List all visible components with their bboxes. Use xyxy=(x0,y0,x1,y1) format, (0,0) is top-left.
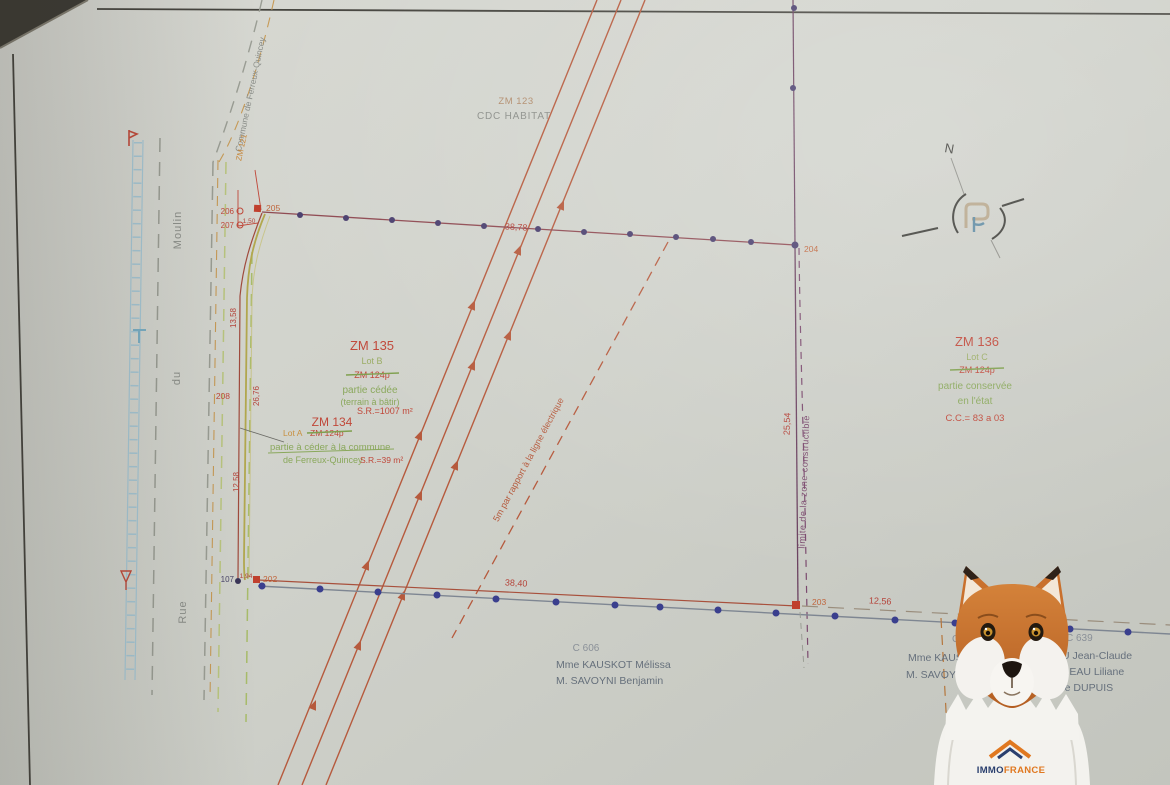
shadow-overlay xyxy=(0,0,1170,785)
photographed-survey-plan: ZM 123 CDC HABITAT Commune de Ferreux-Qu… xyxy=(0,0,1170,785)
plan-canvas: ZM 123 CDC HABITAT Commune de Ferreux-Qu… xyxy=(0,0,1170,785)
